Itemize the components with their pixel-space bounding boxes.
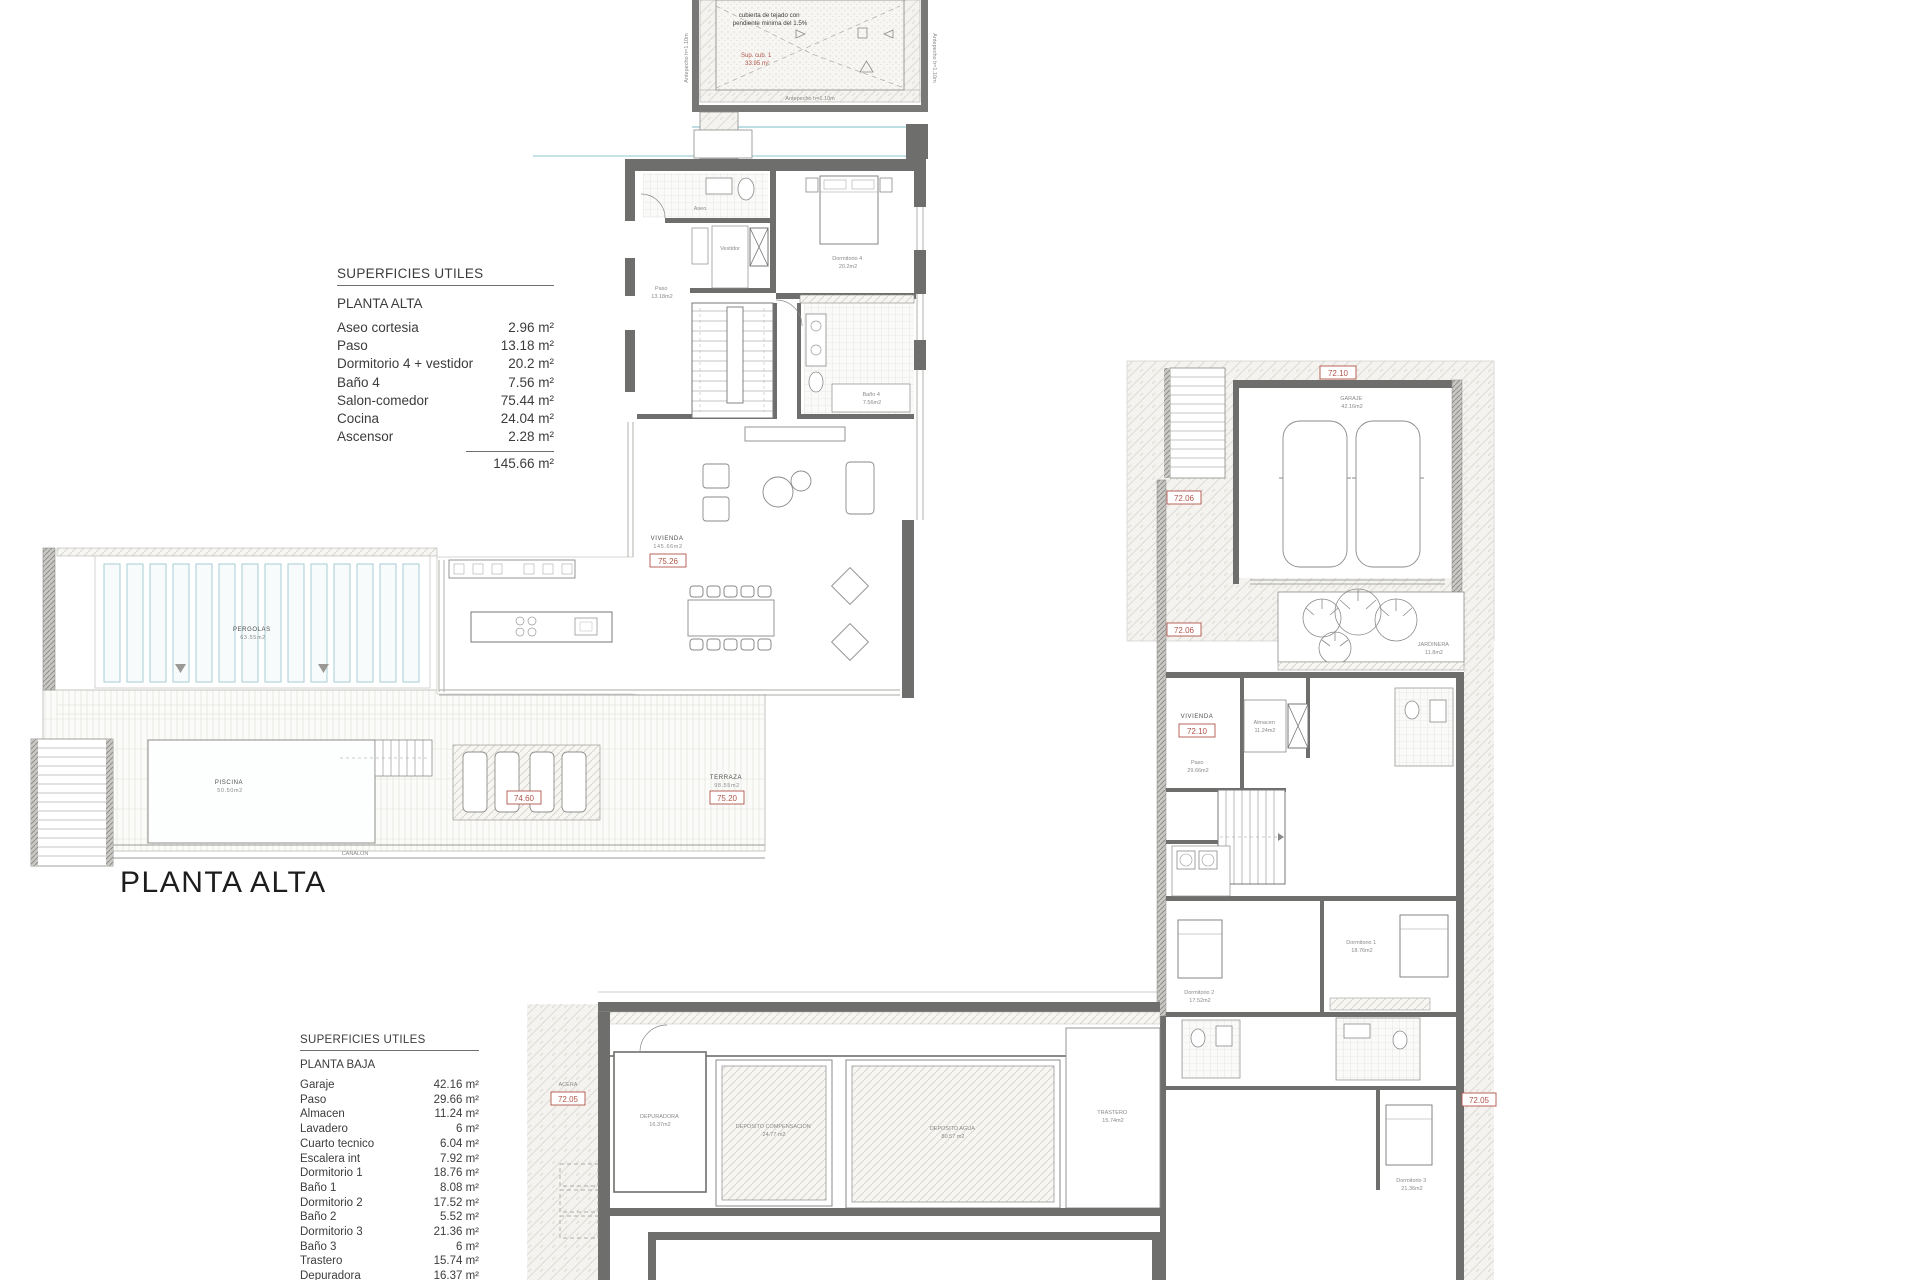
bano4: Baño 4 7.56m2 (800, 295, 914, 414)
area-row: Salon-comedor 75.44 m² (337, 392, 554, 410)
coffee-table (791, 471, 811, 491)
toilet (1393, 1031, 1407, 1049)
area-row: Trastero 15.74 m² (300, 1254, 479, 1269)
wall-insulation (598, 1012, 1160, 1024)
almacen-room (1244, 700, 1286, 752)
retaining-wall-left (43, 548, 55, 690)
area-row: Dormitorio 4 + vestidor 20.2 m² (337, 355, 554, 373)
floor-title: PLANTA ALTA (120, 866, 327, 900)
bed (1178, 920, 1222, 978)
level-annotation-terraza: 75.20 (710, 791, 744, 804)
svg-text:75.26: 75.26 (658, 557, 679, 566)
kitchen-counter (449, 560, 575, 578)
sofa (846, 462, 874, 514)
parapet-label-right: Antepecho h=1.10m (931, 33, 937, 83)
pool (148, 740, 375, 843)
ground-floor-plan: GARAJE 42.16m2 72.10 JARDINERA 11.8m2 (1127, 361, 1496, 1280)
east-wall (1456, 672, 1464, 1280)
sink (1430, 700, 1446, 722)
bathroom-low (1336, 1018, 1420, 1080)
area-table-planta-baja: SUPERFICIES UTILES PLANTA BAJA Garaje 42… (300, 1034, 479, 1280)
vault-wall-left (648, 1240, 656, 1280)
parapet-label-bottom: Antepecho h=1.10m (785, 96, 835, 102)
level-annotation-acera: 72.05 (551, 1092, 585, 1105)
kitchen-island (471, 612, 612, 642)
car (1356, 421, 1420, 567)
toilet (1405, 701, 1419, 719)
svg-text:75.20: 75.20 (717, 794, 738, 803)
vestidor-label: Vestidor (720, 246, 740, 252)
armchair (703, 464, 729, 488)
area-row: Dormitorio 2 17.52 m² (300, 1196, 479, 1211)
area-row: Dormitorio 3 21.36 m² (300, 1225, 479, 1240)
vault-wall-right (1152, 1240, 1160, 1280)
svg-text:72.05: 72.05 (1469, 1096, 1490, 1105)
area-row: Ascensor 2.28 m² (337, 428, 554, 446)
area-row: Dormitorio 1 18.76 m² (300, 1166, 479, 1181)
area-table-planta-alta: SUPERFICIES UTILES PLANTA ALTA Aseo cort… (337, 266, 554, 471)
sink (706, 178, 732, 194)
svg-text:72.05: 72.05 (558, 1095, 579, 1104)
roof-wall-left (692, 0, 699, 112)
roof-note: cubierta de tejado con pendiente minima … (733, 12, 808, 27)
wardrobe (800, 295, 914, 303)
vivienda-baja-label: VIVIENDA (1181, 714, 1214, 720)
sink (1216, 1026, 1232, 1046)
level-annotation-tumbonas: 74.60 (507, 791, 541, 804)
deposito-agua: DEPOSITO AGUA 80.57 m2 (846, 1060, 1060, 1208)
svg-text:72.10: 72.10 (1328, 369, 1349, 378)
basement-west-wall (598, 1012, 610, 1280)
closet (1330, 998, 1430, 1010)
sunloungers (453, 745, 600, 820)
svg-text:72.06: 72.06 (1174, 626, 1195, 635)
car (1283, 421, 1347, 567)
exterior-paving-right (1464, 640, 1494, 1280)
svg-text:72.06: 72.06 (1174, 494, 1195, 503)
svg-text:74.60: 74.60 (514, 794, 535, 803)
bed (1386, 1105, 1432, 1165)
bathroom-mid (1182, 1020, 1240, 1078)
level-annotation-vivienda-alta: 75.26 (650, 554, 686, 567)
bed (820, 176, 878, 244)
svg-text:72.10: 72.10 (1187, 727, 1208, 736)
area-row: Baño 4 7.56 m² (337, 374, 554, 392)
roof-parapet-band-left (700, 0, 716, 98)
area-row: Lavadero 6 m² (300, 1122, 479, 1137)
roof-wall-bottom (692, 105, 928, 112)
trastero-room: TRASTERO 15.74m2 (1066, 1028, 1160, 1208)
toilet (809, 372, 823, 392)
bed (1400, 915, 1448, 977)
basement-south-wall (610, 1208, 1160, 1216)
area-row: Almacen 11.24 m² (300, 1107, 479, 1122)
toilet (1191, 1029, 1205, 1047)
table-floor-name: PLANTA BAJA (300, 1059, 479, 1071)
table-floor-name: PLANTA ALTA (337, 296, 554, 311)
level-annotation-garaje: 72.10 (1320, 366, 1356, 379)
lavadero (1172, 846, 1230, 896)
level-annotation-lateral2: 72.06 (1167, 623, 1201, 636)
total-row: 145.66 m² (337, 452, 554, 471)
area-row: Paso 29.66 m² (300, 1093, 479, 1108)
upper-floor-plan: CANALON PISCINA 50.50m2 74.60 TERRAZA 98… (31, 124, 928, 866)
nightstand (806, 178, 818, 192)
dining-set (688, 586, 774, 650)
basement-north-wall (598, 1002, 1160, 1012)
floor-plan-drawing: cubierta de tejado con pendiente minima … (0, 0, 1920, 1280)
pergola: PERGOLAS 63.55m2 (57, 548, 437, 688)
coffee-table (763, 477, 793, 507)
basement-plan: DEPURADORA 16.37m2 DEPOSITO COMPENSACION… (527, 992, 1160, 1280)
area-row: Baño 1 8.08 m² (300, 1181, 479, 1196)
area-row: Aseo cortesia 2.96 m² (337, 319, 554, 337)
table-header: SUPERFICIES UTILES (300, 1034, 479, 1051)
table-header: SUPERFICIES UTILES (337, 266, 554, 286)
area-row: Baño 2 5.52 m² (300, 1210, 479, 1225)
shaft-housing (694, 130, 752, 158)
exterior-stair-north (1164, 368, 1225, 478)
exterior-paving-left (527, 1004, 598, 1280)
area-row: Paso 13.18 m² (337, 337, 554, 355)
level-annotation-lateral1: 72.06 (1167, 491, 1201, 504)
area-row: Escalera int 7.92 m² (300, 1152, 479, 1167)
parapet-label-left: Antepecho h=1.10m (684, 33, 690, 83)
acera-label: ACERA (559, 1082, 578, 1088)
aseo-label: Aseo (694, 206, 707, 212)
level-annotation-vivienda-baja: 72.10 (1179, 724, 1215, 737)
vault-wall (648, 1232, 1160, 1240)
closet (692, 228, 708, 264)
area-row: Garaje 42.16 m² (300, 1078, 479, 1093)
armchair (703, 497, 729, 521)
dining-table (688, 600, 774, 636)
area-row: Cocina 24.04 m² (337, 410, 554, 428)
bathroom-top (1395, 688, 1453, 766)
exterior-stair (31, 739, 113, 866)
elevator-ground (1288, 704, 1308, 748)
area-row: Baño 3 6 m² (300, 1240, 479, 1255)
dormitorio2-room: Dormitorio 2 17.52m2 (1178, 920, 1222, 1004)
sink (1344, 1024, 1370, 1038)
sideboard (745, 427, 845, 441)
total-value: 145.66 m² (493, 456, 554, 471)
aseo-room: Aseo (641, 173, 768, 218)
vanity (806, 314, 826, 366)
level-annotation-acera-right: 72.05 (1462, 1093, 1496, 1106)
canalon-label: CANALON (342, 851, 369, 857)
west-wall (1157, 480, 1166, 1016)
jardinera: JARDINERA 11.8m2 (1278, 589, 1464, 670)
roof-parapet-band-right (904, 0, 920, 98)
area-row: Depuradora 16.37 m² (300, 1269, 479, 1280)
area-row: Cuarto tecnico 6.04 m² (300, 1137, 479, 1152)
elevator (750, 228, 768, 266)
roof-wall-right (921, 0, 928, 112)
toilet (738, 178, 754, 200)
shower (832, 384, 910, 412)
interior-stair (692, 303, 773, 418)
nightstand (880, 178, 892, 192)
drawing-sheet: cubierta de tejado con pendiente minima … (0, 0, 1920, 1280)
deposito-compensacion: DEPOSITO COMPENSACION 24.77 m2 (716, 1060, 832, 1206)
